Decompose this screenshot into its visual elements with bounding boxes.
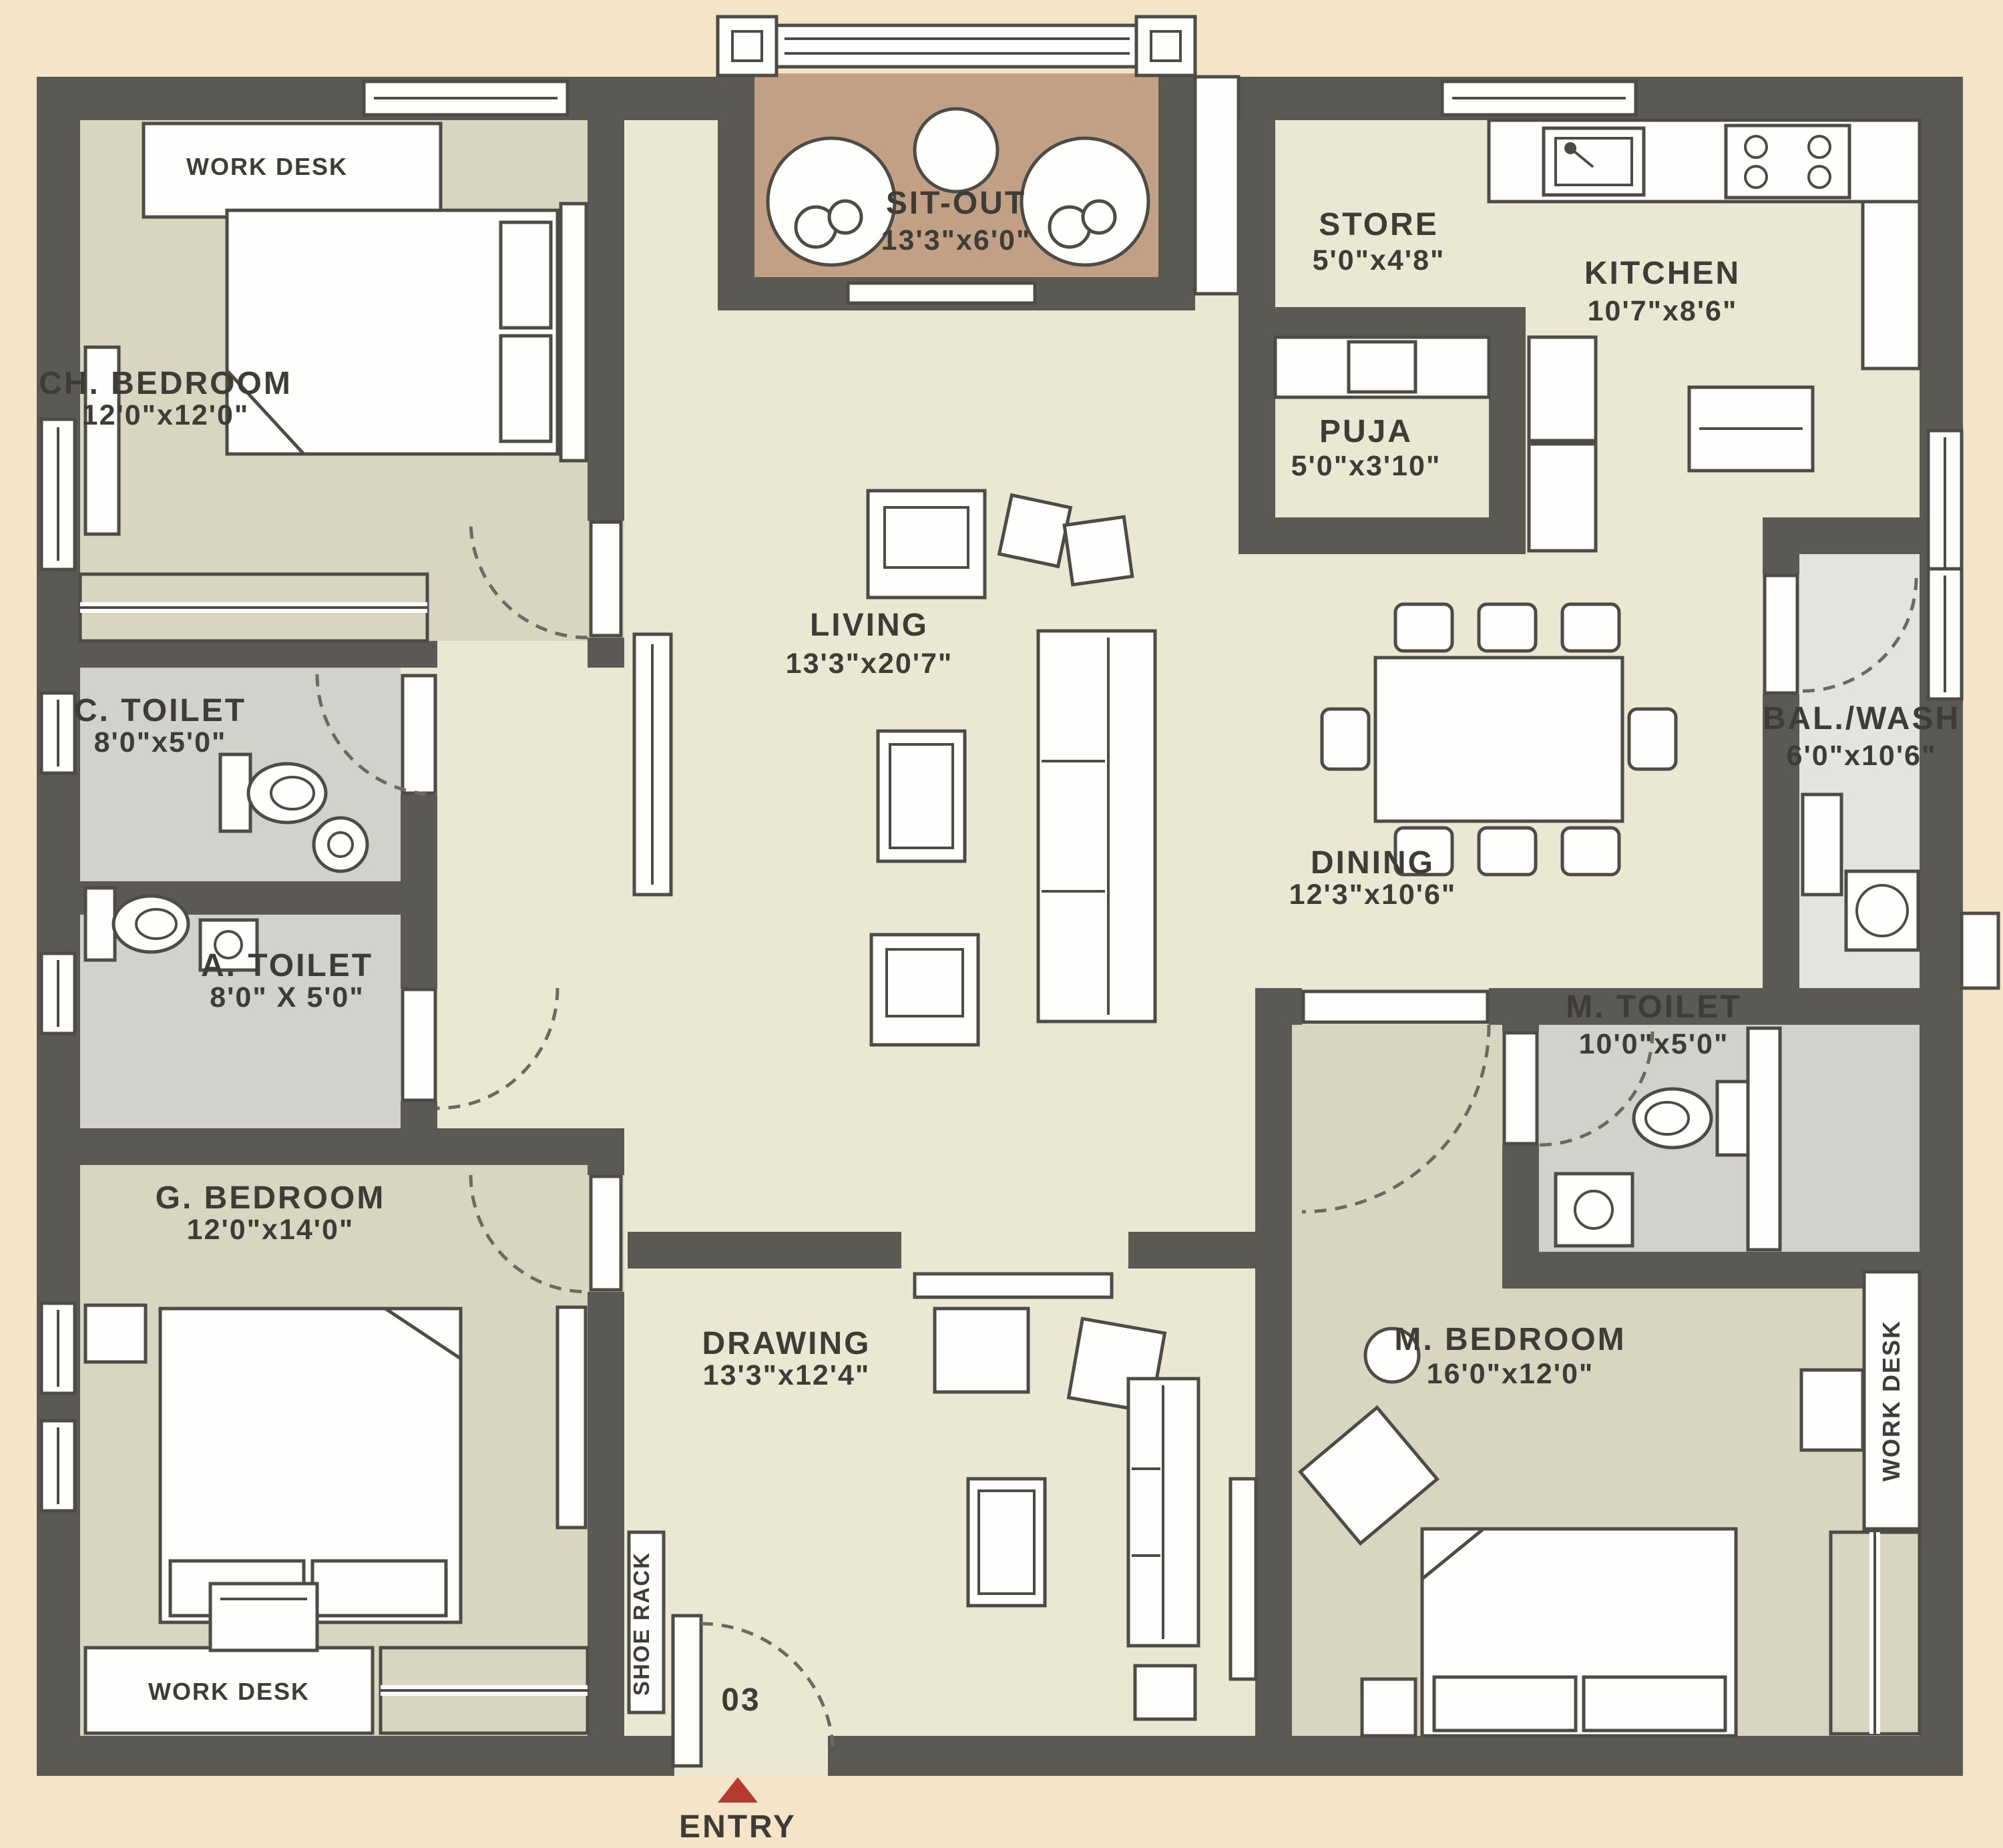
door-leaf	[591, 522, 621, 636]
unit-number: 03	[721, 1682, 760, 1718]
door-leaf	[591, 1176, 621, 1290]
window-icon	[41, 419, 75, 569]
room-label: A. TOILET	[201, 948, 373, 983]
room-label: CH. BEDROOM	[39, 366, 292, 401]
window-icon	[41, 693, 75, 773]
window-icon	[364, 81, 568, 115]
dining-chair-icon	[1562, 604, 1619, 651]
room-label: LIVING	[810, 608, 929, 643]
kitchen-counter-side	[1863, 202, 1920, 369]
dining-chair-icon	[1629, 709, 1676, 769]
side-table-icon	[1362, 1679, 1415, 1736]
console-table-icon	[915, 1274, 1112, 1297]
window-icon	[1928, 569, 1962, 699]
armchair-icon	[868, 491, 985, 598]
work-desk-label: WORK DESK	[186, 153, 348, 180]
stool-icon	[1135, 1666, 1195, 1719]
room-dims: 5'0"x4'8"	[1313, 244, 1445, 276]
side-table-icon	[85, 1305, 146, 1362]
door-leaf	[673, 1616, 701, 1766]
balcony-ledge	[1962, 913, 1998, 988]
room-label: G. BEDROOM	[156, 1180, 386, 1216]
desk-chair-icon	[1801, 1370, 1863, 1450]
coffee-table-icon	[968, 1479, 1045, 1606]
window-icon	[41, 1303, 75, 1393]
floor-plan-page: CH. BEDROOM 12'0"x12'0" C. TOILET 8'0"x5…	[0, 0, 2003, 1848]
bed-symbol	[227, 204, 586, 461]
armchair-icon	[871, 935, 978, 1045]
side-table-icon	[999, 495, 1071, 567]
room-label: C. TOILET	[74, 693, 246, 728]
desk-chair-icon	[210, 1584, 317, 1650]
sitout-slider	[848, 283, 1035, 303]
stove-icon	[1726, 126, 1849, 198]
room-label: DINING	[1311, 845, 1435, 881]
room-label: M. TOILET	[1566, 989, 1741, 1025]
sitout-cornice	[776, 25, 1136, 67]
wash-counter	[1803, 794, 1841, 895]
room-dims: 13'3"x12'4"	[703, 1359, 871, 1391]
sit-out-structure	[718, 17, 1239, 310]
armchair-icon	[935, 1309, 1028, 1392]
floor-plan-drawing: CH. BEDROOM 12'0"x12'0" C. TOILET 8'0"x5…	[0, 0, 2003, 1848]
room-label: BAL./WASH	[1763, 701, 1960, 736]
patio-table-icon	[915, 109, 997, 192]
dining-chair-icon	[1479, 604, 1536, 651]
washing-machine-icon	[1846, 871, 1918, 950]
room-dims: 13'3"x6'0"	[881, 224, 1032, 256]
room-dims: 5'0"x3'10"	[1291, 450, 1441, 482]
room-label: KITCHEN	[1584, 256, 1741, 291]
room-dims: 12'0"x14'0"	[187, 1214, 355, 1246]
dining-chair-icon	[1479, 828, 1536, 875]
shower-partition	[1748, 1028, 1780, 1250]
room-label: PUJA	[1319, 414, 1413, 449]
window-icon	[41, 953, 75, 1033]
patio-chair-icon	[768, 138, 895, 265]
bed-symbol	[160, 1309, 461, 1622]
door-leaf	[1303, 991, 1488, 1022]
door-leaf	[1504, 1033, 1537, 1144]
room-dims: 16'0"x12'0"	[1427, 1358, 1594, 1390]
kitchen-cabinet-icon	[1529, 444, 1596, 551]
bed-symbol	[1422, 1529, 1736, 1736]
room-dims: 10'7"x8'6"	[1588, 295, 1738, 327]
room-dims: 8'0" X 5'0"	[210, 981, 364, 1013]
service-shaft	[1195, 77, 1239, 294]
room-label: DRAWING	[702, 1326, 871, 1361]
washbasin-icon	[1556, 1174, 1632, 1246]
room-dims: 10'0"x5'0"	[1579, 1028, 1729, 1060]
side-table-icon	[1064, 517, 1132, 585]
window-icon	[1442, 81, 1636, 115]
window-icon	[1928, 431, 1962, 574]
work-desk-label: WORK DESK	[1877, 1320, 1905, 1481]
room-dims: 8'0"x5'0"	[94, 726, 227, 758]
toilet-icon	[1634, 1082, 1748, 1155]
dining-table-icon	[1375, 658, 1622, 821]
crockery-unit-icon	[1689, 387, 1813, 471]
dining-chair-icon	[1562, 828, 1619, 875]
sink-icon	[1544, 128, 1644, 195]
dining-chair-icon	[1395, 604, 1452, 651]
refrigerator-icon	[1529, 337, 1596, 441]
sitout-column-left	[718, 17, 776, 75]
shower-icon	[314, 818, 367, 871]
room-dims: 12'0"x12'0"	[82, 399, 250, 431]
room-label: SIT-OUT	[886, 186, 1026, 221]
window-icon	[41, 1421, 75, 1511]
dining-chair-icon	[1322, 709, 1369, 769]
door-leaf	[1765, 575, 1797, 693]
room-dims: 6'0"x10'6"	[1787, 740, 1937, 772]
door-leaf	[403, 676, 435, 793]
room-label: M. BEDROOM	[1394, 1322, 1626, 1357]
dresser-icon	[558, 1307, 586, 1528]
sofa-icon	[1128, 1379, 1198, 1646]
room-label: STORE	[1319, 207, 1438, 242]
tv-unit-icon	[1231, 1479, 1256, 1679]
work-desk-label: WORK DESK	[148, 1678, 310, 1705]
shoe-rack-label: SHOE RACK	[629, 1552, 654, 1696]
room-dims: 13'3"x20'7"	[786, 648, 953, 680]
door-leaf	[403, 989, 435, 1100]
sofa-icon	[1038, 631, 1155, 1021]
tv-unit-icon	[634, 634, 671, 895]
coffee-table-icon	[878, 731, 965, 861]
room-dims: 12'3"x10'6"	[1289, 879, 1457, 911]
entry-label: ENTRY	[679, 1809, 797, 1845]
patio-chair-icon	[1022, 138, 1148, 265]
sitout-column-right	[1136, 17, 1195, 75]
